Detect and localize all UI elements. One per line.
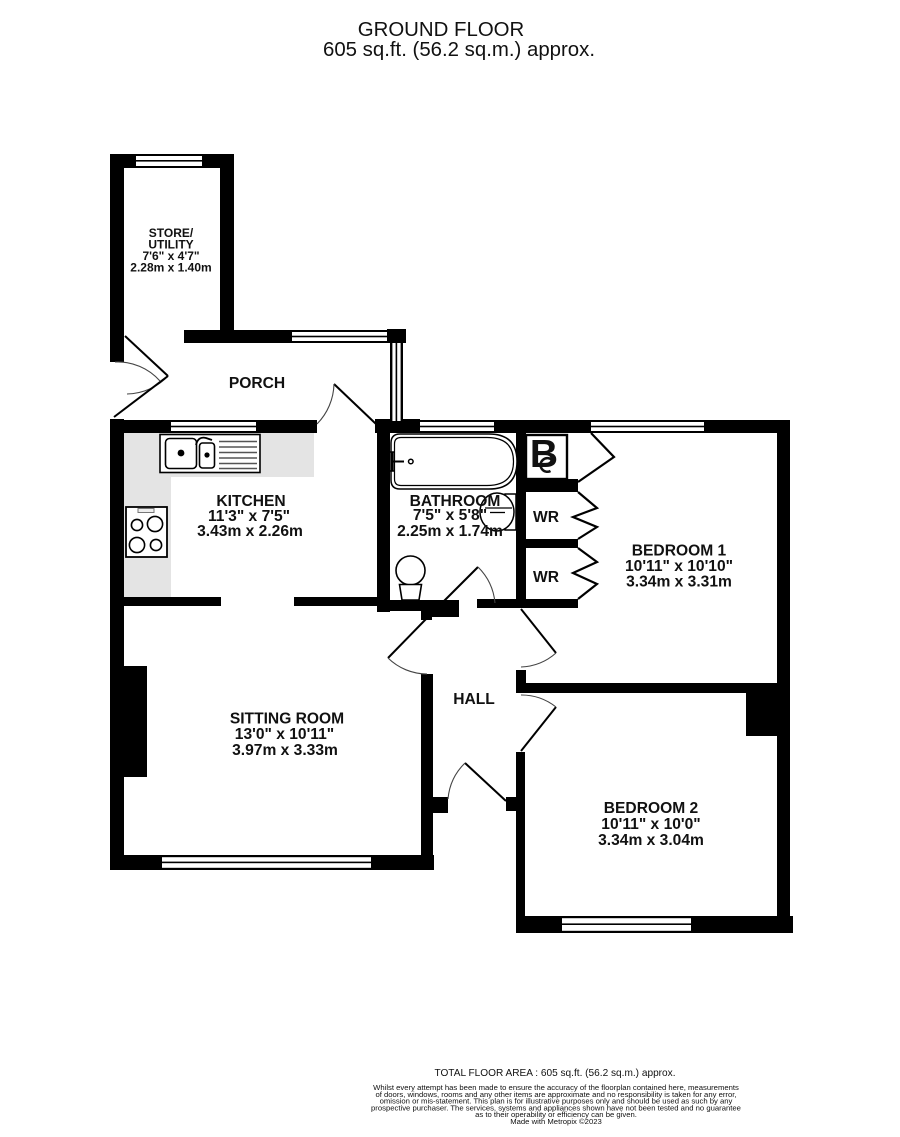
svg-text:WR: WR [533,569,559,586]
svg-text:3.43m x 2.26m: 3.43m x 2.26m [197,523,303,540]
svg-text:PORCH: PORCH [229,375,285,392]
svg-text:BEDROOM 2: BEDROOM 2 [604,800,699,817]
svg-text:HALL: HALL [453,691,495,708]
svg-text:3.97m x 3.33m: 3.97m x 3.33m [232,742,338,759]
svg-text:TOTAL FLOOR AREA : 605 sq.ft.: TOTAL FLOOR AREA : 605 sq.ft. (56.2 sq.m… [434,1068,675,1079]
svg-text:2.25m x 1.74m: 2.25m x 1.74m [397,523,503,540]
svg-text:BEDROOM 1: BEDROOM 1 [632,543,727,560]
svg-text:10'11" x 10'0": 10'11" x 10'0" [601,816,700,833]
svg-text:Made with Metropix ©2023: Made with Metropix ©2023 [510,1117,602,1126]
svg-text:7'5" x 5'8": 7'5" x 5'8" [413,507,487,524]
svg-text:13'0" x 10'11": 13'0" x 10'11" [235,726,334,743]
svg-text:3.34m x 3.31m: 3.34m x 3.31m [626,574,732,591]
svg-text:SITTING ROOM: SITTING ROOM [230,711,344,728]
svg-text:3.34m x 3.04m: 3.34m x 3.04m [598,832,704,849]
svg-text:2.28m x 1.40m: 2.28m x 1.40m [130,261,211,275]
svg-text:GROUND FLOOR: GROUND FLOOR [358,19,525,41]
svg-text:605 sq.ft. (56.2 sq.m.) approx: 605 sq.ft. (56.2 sq.m.) approx. [323,39,595,61]
svg-text:10'11" x 10'10": 10'11" x 10'10" [625,558,733,575]
svg-text:WR: WR [533,509,559,526]
